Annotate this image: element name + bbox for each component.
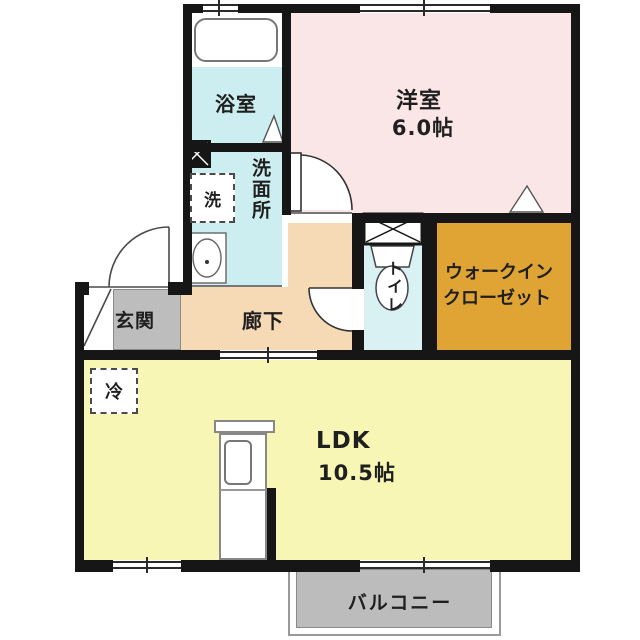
entrance-step-diagonal xyxy=(84,289,111,346)
western-room-label: 洋室 xyxy=(396,83,442,115)
bathtub xyxy=(194,18,278,62)
wall-segment xyxy=(75,350,220,360)
wall-segment xyxy=(571,4,580,572)
sink-drain xyxy=(205,260,209,264)
window-tick xyxy=(423,557,425,573)
kitchen-counter-top xyxy=(214,420,275,433)
wall-segment xyxy=(192,143,282,152)
window-bath xyxy=(203,4,238,12)
walk-in-closet-label-1: ウォークイン xyxy=(445,258,553,284)
wall-segment xyxy=(490,560,580,572)
entrance-label: 玄関 xyxy=(115,306,155,333)
fixtures-layer xyxy=(0,0,640,640)
toilet-label: トイレ xyxy=(381,260,405,314)
refrigerator-box: 冷 xyxy=(90,368,138,414)
balcony-sliding-door xyxy=(360,561,490,569)
washing-machine-label: 洗 xyxy=(204,186,221,211)
wall-segment xyxy=(422,213,437,360)
kitchen-divider xyxy=(220,489,266,491)
bath-label: 浴室 xyxy=(215,88,257,117)
western-room-size: 6.0帖 xyxy=(392,112,454,142)
wall-segment xyxy=(490,4,580,13)
washroom-label: 洗面所 xyxy=(247,158,274,221)
wall-segment xyxy=(317,350,571,360)
wall-segment xyxy=(352,213,571,223)
balcony-label: バルコニー xyxy=(348,588,453,615)
walk-in-closet-label-2: クローゼット xyxy=(443,284,551,310)
closet-door-icon xyxy=(510,186,543,212)
wall-segment xyxy=(352,213,364,289)
window-tick xyxy=(146,557,148,573)
bath-door-icon xyxy=(263,116,283,142)
wall-segment xyxy=(75,560,113,572)
floorplan: 洗 冷 浴室 洋室 6.0帖 洗面所 廊下 玄関 トイレ ウォークイン クローゼ… xyxy=(0,0,640,640)
window-tick xyxy=(267,347,269,363)
hallway-label: 廊下 xyxy=(242,305,284,334)
sink-bowl xyxy=(193,239,221,277)
ldk-label: LDK xyxy=(316,428,371,454)
kitchen-sink xyxy=(224,440,252,485)
wall-segment xyxy=(75,282,84,572)
entrance-door-arc xyxy=(109,227,169,287)
wall-segment xyxy=(183,4,192,295)
wall-segment xyxy=(282,4,291,215)
wall-segment xyxy=(168,282,192,295)
refrigerator-label: 冷 xyxy=(105,378,123,404)
ldk-size: 10.5帖 xyxy=(318,457,396,487)
washing-machine-box: 洗 xyxy=(190,173,235,223)
window-western xyxy=(360,4,490,12)
window-tick xyxy=(423,0,425,16)
wall-segment xyxy=(238,4,360,13)
window-tick xyxy=(218,0,220,16)
